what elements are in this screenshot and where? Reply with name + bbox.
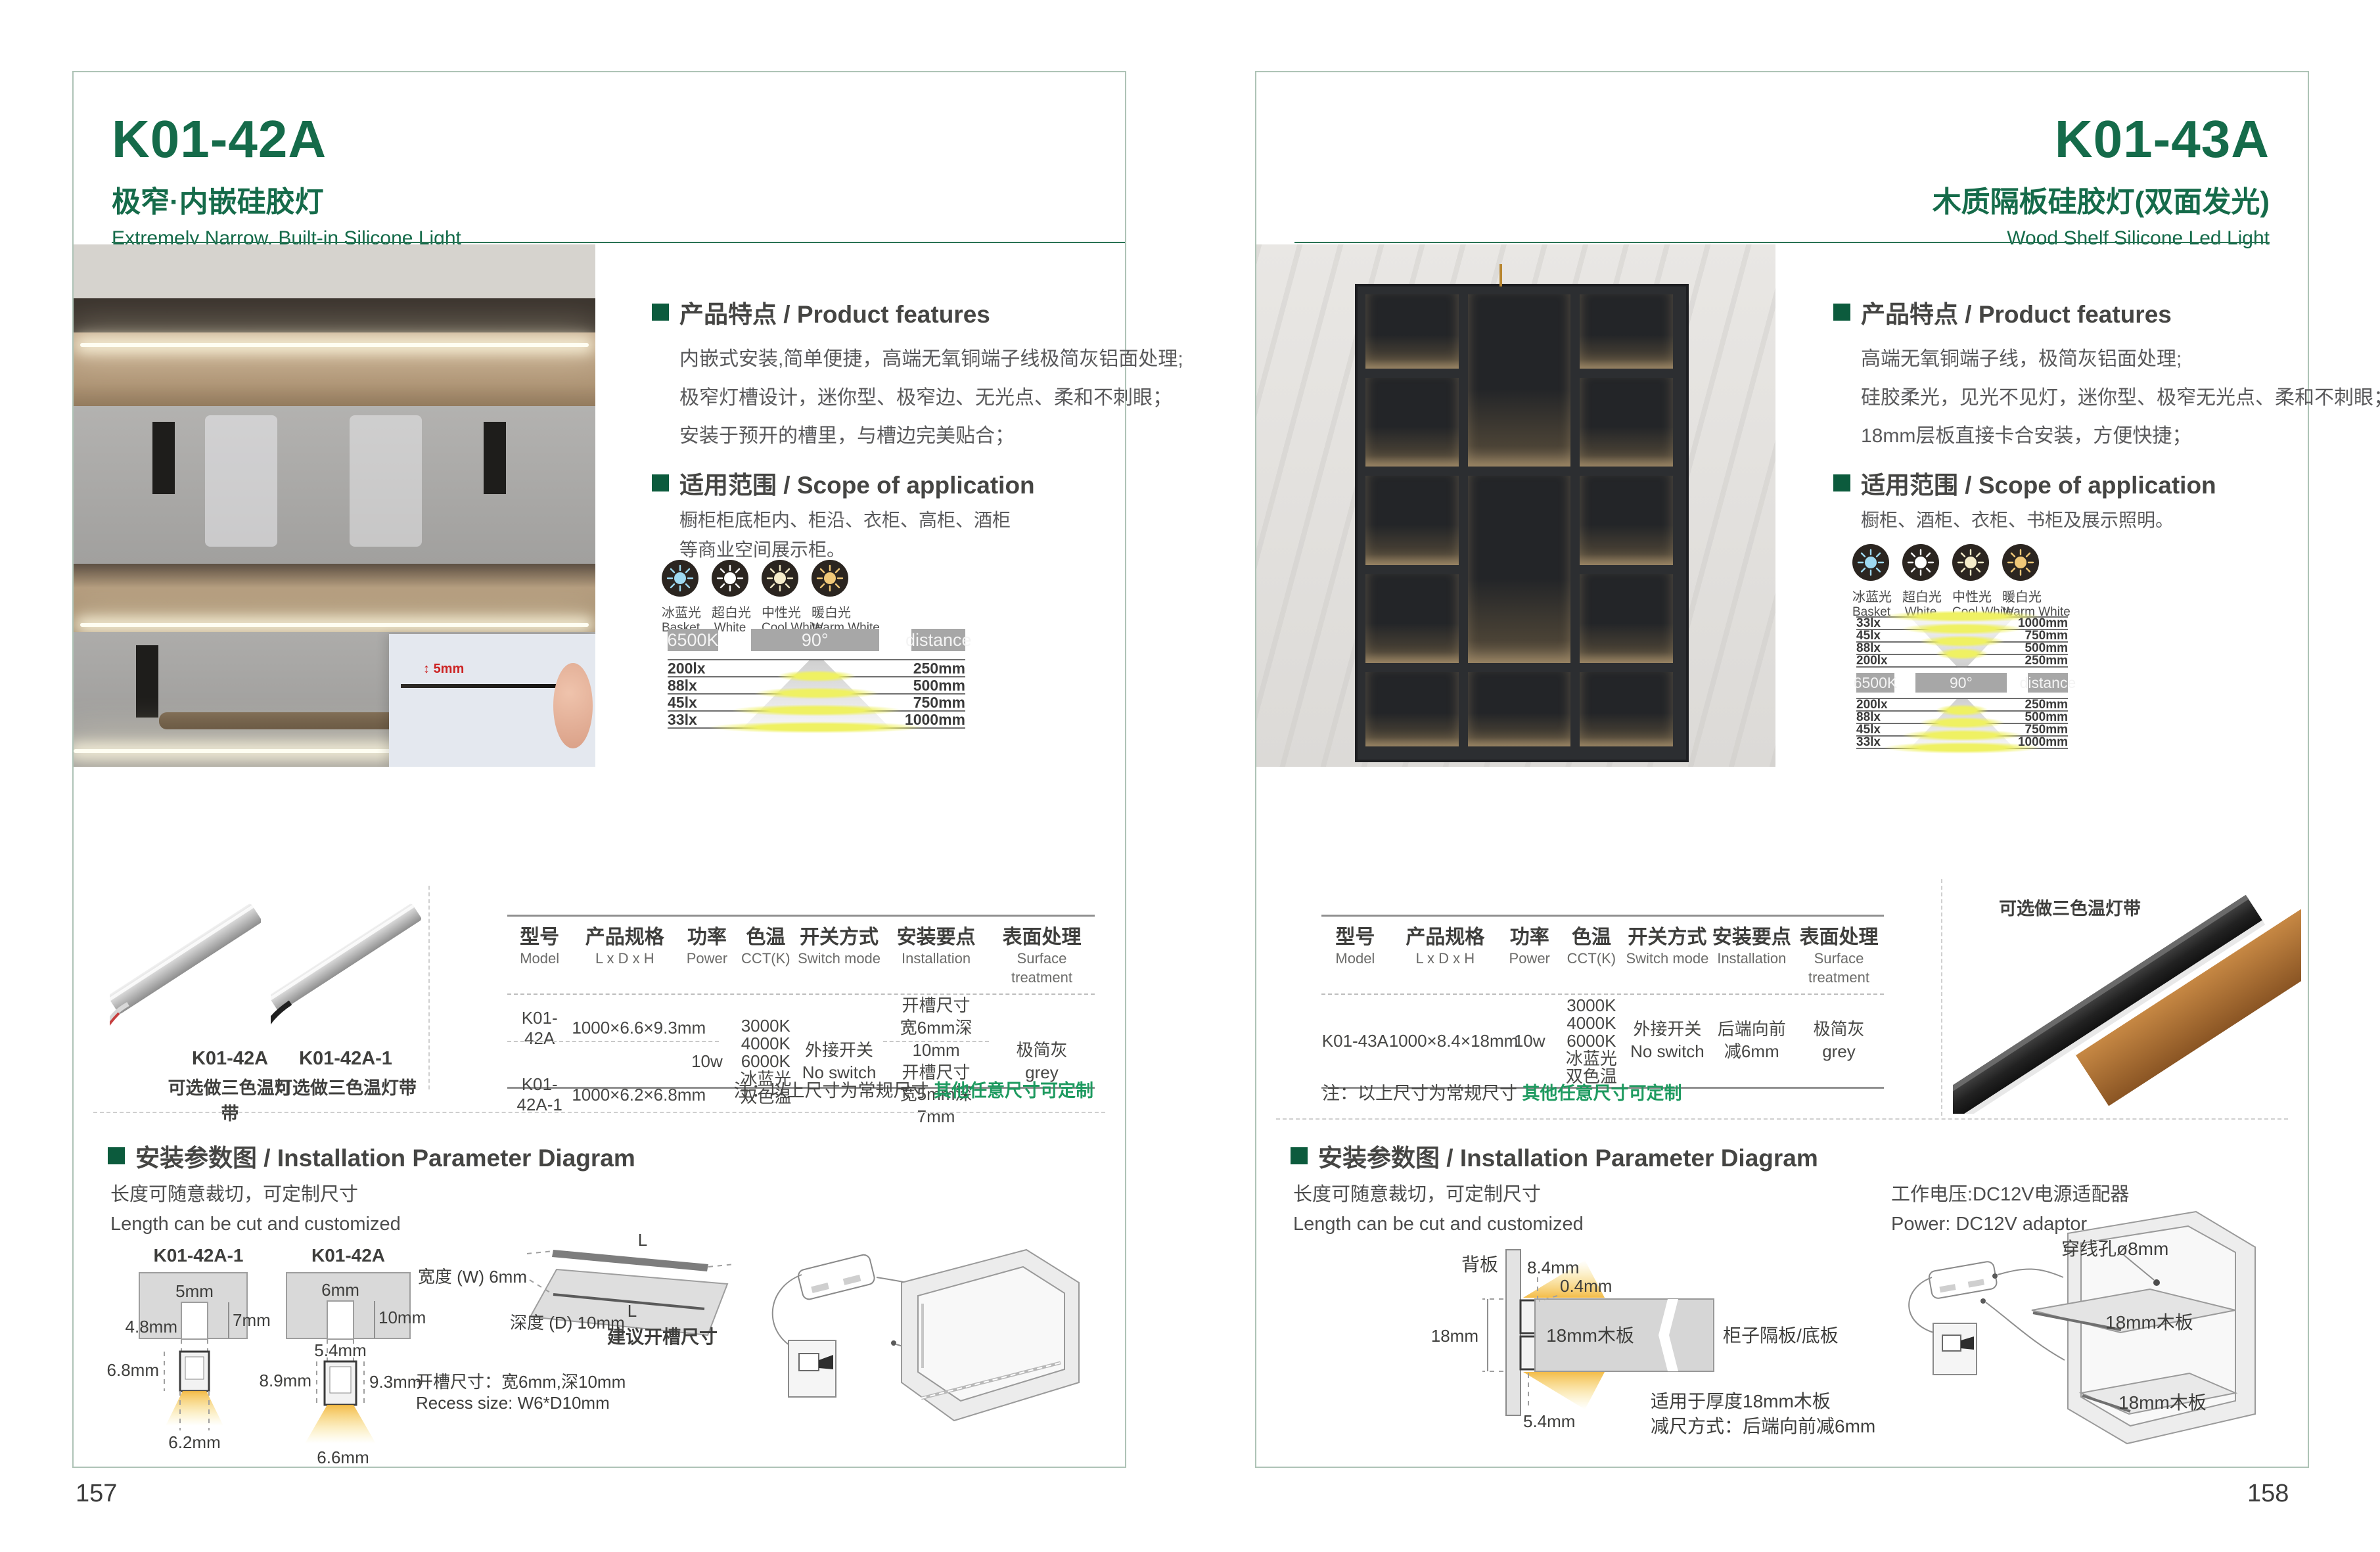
cell-switch-en: No switch [1625,1041,1709,1063]
inset-photo-thickness: ↕ 5mm [389,634,595,767]
note-prefix: 注：以上尺寸为常规尺寸 [1322,1084,1522,1103]
col-spec: 1000×8.4×18mm [1389,995,1501,1087]
header-cn: 功率 [677,926,736,949]
shelf-panel-label: 柜子隔板/底板 [1723,1325,1839,1346]
cabinet-cell [1468,476,1570,663]
page-157: K01-42A 极窄·内嵌硅胶灯 Extremely Narrow. Built… [72,71,1126,1468]
shelf-bracket-3 [136,645,158,718]
glow-ellipse [1936,704,1988,716]
header-divider [1294,242,2270,243]
sun-icon [2002,544,2039,581]
feature-line: 内嵌式安装,简单便捷，高端无氧铜端子线极简灰铝面处理; [679,340,1183,379]
note-prefix: 注：以上尺寸为常规尺寸 [733,1081,934,1101]
col-cct: 3000K 4000K 6000K 冰蓝光 双色温 [737,995,795,1128]
light-option-cn: 超白光 [712,602,748,621]
cell-model: K01-42A-1 [507,1074,572,1115]
recess-size-cn: 开槽尺寸：宽6mm,深10mm [416,1372,626,1392]
light-option-cn: 冰蓝光 [662,602,698,621]
table-note: 注：以上尺寸为常规尺寸 其他任意尺寸可定制 [1322,1079,1682,1105]
sun-icon [762,560,798,597]
catalog-spread: K01-42A 极窄·内嵌硅胶灯 Extremely Narrow. Built… [0,0,2380,1552]
page-number-right: 158 [2247,1480,2289,1508]
section-bullet-icon [108,1147,125,1164]
header-cn: 安装要点 [1710,926,1794,949]
col-header: 型号Model [507,926,572,987]
chart-header: 6500K 90° distance [1856,673,2068,693]
header-cn: 型号 [507,926,572,949]
header-en: L x D x H [572,949,677,969]
distance-value: 1000mm [905,711,965,729]
dim-right: 9.3mm [369,1372,421,1392]
scope-line: 橱柜柜底柜内、柜沿、衣柜、高柜、酒柜 [679,506,1011,536]
scope-text: 橱柜柜底柜内、柜沿、衣柜、高柜、酒柜 等商业空间展示柜。 [679,506,1011,565]
section-bullet-icon [1833,474,1850,491]
header-en: Power [1501,949,1558,969]
inset-strip [401,684,565,688]
install-line: 后端向前 [1710,1018,1794,1041]
dim-depth: 10mm [378,1308,426,1327]
col-header: 色温CCT(K) [737,926,795,987]
shelf-section-diagram: 背板 8.4mm 0.4mm 18mm 18mm木板 柜子隔板/底板 5.4mm… [1431,1250,1875,1436]
feature-line: 高端无氧铜端子线，极简灰铝面处理; [1861,340,2380,379]
header-en: Model [1321,949,1389,969]
distance-badge: distance [911,629,965,651]
cct-line: 6000K [737,1053,795,1070]
wiring-illustration [773,1250,1079,1421]
header-en: Surface treatment [1794,949,1884,987]
product-photo-shelf-lighting: ↕ 5mm [74,244,595,767]
glow-ellipse [754,687,879,699]
cabinet-cells [1365,294,1673,746]
light-option-white: 超白光 White [1902,544,1939,620]
header-en: L x D x H [1389,949,1501,969]
table-header: 型号Model 产品规格L x D x H 功率Power 色温CCT(K) 开… [507,917,1095,995]
header-en: Model [507,949,572,969]
wire-black [271,1003,290,1034]
header-en: CCT(K) [1558,949,1626,969]
led-strip-glow-2 [80,623,589,627]
board-caption: 建议开槽尺寸 [607,1327,718,1347]
lux-value: 200lx [1856,654,1888,668]
header-en: Surface treatment [989,949,1095,987]
glow-ellipse [1919,635,2005,647]
header-en: Power [677,949,736,969]
install-line: 宽6mm深10mm [883,1017,989,1062]
model-code: K01-43A [1933,113,2270,166]
cct-line: 冰蓝光 [1558,1050,1626,1068]
cell-spec: 1000×8.4×18mm [1389,1031,1501,1051]
light-option-cn: 中性光 [1952,586,1989,605]
features-text: 内嵌式安装,简单便捷，高端无氧铜端子线极简灰铝面处理; 极窄灯槽设计，迷你型、极… [679,340,1183,456]
wire-white [110,1004,128,1028]
cell-power: 10w [677,1051,736,1072]
light-option-coolwhite: 中性光 Cool White [762,560,798,635]
fit-note: 适用于厚度18mm木板 [1651,1391,1831,1411]
title-en: Wood Shelf Silicone Led Light [1933,229,2270,248]
cabinet-cell [1468,294,1570,467]
cct-badge: 6500K [668,629,718,651]
dim-0-4: 0.4mm [1560,1276,1612,1296]
col-header: 型号Model [1321,926,1389,987]
dim-top: 5mm [175,1281,214,1301]
product-illustration-k01-42a [110,887,261,1038]
distance-value: 250mm [2025,654,2069,668]
length-label: L [638,1230,647,1250]
light-option-coolwhite: 中性光 Cool White [1952,544,1989,620]
cell-switch-cn: 外接开关 [795,1039,883,1062]
page-title: K01-43A 木质隔板硅胶灯(双面发光) Wood Shelf Silicon… [1933,113,2270,248]
section-divider-dash [1276,1118,2288,1120]
beam-angle-badge: 90° [751,629,879,651]
header-cn: 开关方式 [1625,926,1709,949]
glass-container-1 [205,415,277,547]
dim-top: 6mm [321,1280,359,1300]
col-surface: 极简灰grey [989,995,1095,1128]
cell-model: K01-42A [507,1008,572,1049]
glow-ellipse [731,704,902,716]
table-header: 型号Model 产品规格L x D x H 功率Power 色温CCT(K) 开… [1321,917,1884,995]
glass-container-2 [350,415,422,547]
col-header: 表面处理Surface treatment [1794,926,1884,987]
scope-heading: 适用范围 / Scope of application [679,465,1035,501]
header-cn: 安装要点 [883,926,989,949]
header-cn: 型号 [1321,926,1389,949]
pendant-wire [1499,264,1502,286]
col-header: 功率Power [1501,926,1558,987]
back-panel-label: 背板 [1461,1254,1498,1275]
distance-badge: distance [2028,673,2068,693]
lux-value: 45lx [668,694,697,712]
sun-icon [1852,544,1889,581]
distance-value: 1000mm [2018,735,2068,750]
recess-size-en: Recess size: W6*D10mm [416,1393,610,1413]
suggested-recess-board: L L 宽度 (W) 6mm 深度 (D) 10mm 建议开槽尺寸 开槽尺寸：宽… [416,1230,735,1413]
glow-ellipse [777,670,856,682]
cabinet-cell [1580,574,1673,663]
wiring-illustration: 穿线孔ø8mm 18mm木板 18mm木板 [1909,1212,2255,1444]
feature-line: 18mm层板直接卡合安装，方便快捷； [1861,417,2380,456]
dim-bottom: 6.2mm [168,1432,220,1452]
photo-ceiling [74,244,595,298]
light-option-warmwhite: 暖白光 Warm White [2002,544,2039,620]
features-heading: 产品特点 / Product features [679,294,990,330]
header-cn: 色温 [1558,926,1626,949]
cabinet-cell [1580,294,1673,369]
cct-line: 6000K [1558,1032,1626,1050]
chart-header: 6500K 90° distance [668,629,965,651]
page-158: K01-43A 木质隔板硅胶灯(双面发光) Wood Shelf Silicon… [1255,71,2309,1468]
title-cn: 极窄·内嵌硅胶灯 [112,188,461,217]
header-en: Switch mode [1625,949,1709,969]
thickness-dim-label: ↕ 5mm [423,662,464,677]
install-heading: 安装参数图 / Installation Parameter Diagram [135,1138,635,1174]
feature-line: 极窄灯槽设计，迷你型、极窄边、无光点、柔和不刺眼； [679,379,1183,418]
light-option-warmwhite: 暖白光 Warm White [812,560,848,635]
features-heading-row: 产品特点 / Product features [1833,294,2172,330]
cabinet-cell [1468,672,1570,746]
row-divider-dash [507,1041,719,1042]
diagram-model-label: K01-42A [311,1245,385,1266]
col-power: 10w [677,995,736,1128]
install-entry: 开槽尺寸宽6mm深10mm [883,995,989,1061]
title-cn: 木质隔板硅胶灯(双面发光) [1933,188,2270,217]
col-surface: 极简灰grey [1794,995,1884,1087]
lux-value: 200lx [668,660,706,677]
shelf-board-label-2: 18mm木板 [2118,1392,2207,1413]
light-option-cn: 暖白光 [812,602,848,621]
light-color-options: 冰蓝光 Basket 超白光 White 中性光 Cool White [662,560,848,635]
dim-5-4: 5.4mm [1523,1411,1575,1431]
shelf-bracket-1 [152,422,175,494]
power-adapter-drawing [1928,1261,1998,1300]
col-header: 开关方式Switch mode [1625,926,1709,987]
light-option-white: 超白光 White [712,560,748,635]
sun-icon [662,560,698,597]
cabinet-cell [1365,378,1459,467]
cell-model: K01-43A [1321,1031,1389,1051]
product-model: K01-42A-1 [273,1045,418,1074]
cabinet-cell [1580,476,1673,564]
light-option-iceblue: 冰蓝光 Basket [1852,544,1889,620]
cabinet-cell [1580,672,1673,746]
scope-text: 橱柜、酒柜、衣柜、书柜及展示照明。 [1861,506,2174,536]
col-install: 后端向前减6mm [1710,995,1794,1087]
header-cn: 产品规格 [572,926,677,949]
col-spec: 1000×6.6×9.3mm1000×6.2×6.8mm [572,995,677,1128]
scope-line: 橱柜、酒柜、衣柜、书柜及展示照明。 [1861,506,2174,536]
section-bullet-icon [652,304,669,321]
spec-table: 型号Model 产品规格L x D x H 功率Power 色温CCT(K) 开… [1321,915,1884,1089]
install-diagram-right: 背板 8.4mm 0.4mm 18mm 18mm木板 柜子隔板/底板 5.4mm… [1276,1204,2288,1467]
light-distance-chart-double: 33lx1000mm 45lx750mm 88lx500mm 200lx250m… [1856,616,2068,749]
col-switch: 外接开关No switch [795,995,883,1128]
led-strip-glow-1 [80,343,589,347]
sun-icon [1902,544,1939,581]
row-divider-dash [883,1041,989,1042]
scope-heading: 适用范围 / Scope of application [1861,465,2216,501]
shelf-board-label-1: 18mm木板 [2105,1312,2193,1333]
board-label: 18mm木板 [1546,1325,1634,1346]
scope-heading-row: 适用范围 / Scope of application [652,465,1035,501]
distance-value: 500mm [913,677,965,695]
length-label: L [628,1301,637,1321]
col-model: K01-43A [1321,995,1389,1087]
light-option-cn: 暖白光 [2002,586,2039,605]
cct-line: 3000K [1558,997,1626,1015]
install-diagram-left: K01-42A-1 5mm 7mm 4.8mm 6.8mm 6.2mm K01-… [93,1204,1105,1467]
header-cn: 表面处理 [989,926,1095,949]
light-option-cn: 冰蓝光 [1852,586,1889,605]
dim-inner: 5.4mm [314,1340,366,1360]
install-heading: 安装参数图 / Installation Parameter Diagram [1318,1138,1818,1174]
table-note: 注：以上尺寸为常规尺寸 其他任意尺寸可定制 [733,1076,1093,1102]
glow-ellipse [1919,717,2005,729]
sun-icon [812,560,848,597]
page-title: K01-42A 极窄·内嵌硅胶灯 Extremely Narrow. Built… [112,113,461,248]
product-label-2: K01-42A-1 可选做三色温灯带 [273,1045,418,1099]
cct-line: 4000K [737,1035,795,1053]
product-illustration-k01-43a: 可选做三色温灯带 [1953,877,2301,1114]
cell-surface-cn: 极简灰 [1794,1018,1884,1041]
col-header: 安装要点Installation [1710,926,1794,987]
lux-value: 33lx [668,711,697,729]
distance-value: 750mm [913,694,965,712]
profile-drawing [110,887,261,1038]
page-number-left: 157 [76,1480,117,1508]
cabinet-cell [1365,294,1459,369]
dim-height: 6.8mm [107,1360,159,1380]
section-bullet-icon [652,474,669,491]
product-note: 可选做三色温灯带 [273,1074,418,1099]
header-cn: 产品规格 [1389,926,1501,949]
col-header: 色温CCT(K) [1558,926,1626,987]
cell-spec: 1000×6.6×9.3mm [572,1018,677,1038]
features-text: 高端无氧铜端子线，极简灰铝面处理; 硅胶柔光，见光不见灯，迷你型、极窄无光点、柔… [1861,340,2380,456]
beam-angle-badge: 90° [1915,673,2006,693]
cell-spec: 1000×6.2×6.8mm [572,1085,677,1105]
cct-badge: 6500K [1856,673,1894,693]
thickness-arrow-icon: ↕ [423,662,430,676]
recess-diagram-k01-42a-1: K01-42A-1 5mm 7mm 4.8mm 6.8mm 6.2mm [107,1245,271,1452]
cct-line: 3000K [737,1017,795,1035]
col-header: 开关方式Switch mode [795,926,883,987]
install-line: 开槽尺寸 [883,995,989,1017]
col-cct: 3000K 4000K 6000K 冰蓝光 双色温 [1558,995,1626,1087]
header-cn: 功率 [1501,926,1558,949]
photo-beam [74,298,595,332]
features-heading-row: 产品特点 / Product features [652,294,990,330]
col-switch: 外接开关No switch [1625,995,1709,1087]
sun-icon [712,560,748,597]
feature-line: 安装于预开的槽里，与槽边完美贴合； [679,417,1183,456]
dim-18: 18mm [1431,1326,1478,1346]
width-label: 宽度 (W) 6mm [418,1267,527,1287]
col-header: 表面处理Surface treatment [989,926,1095,987]
cell-surface-cn: 极简灰 [989,1039,1095,1062]
profile-drawing [271,887,422,1038]
chart-rows: 200lx250mm 88lx500mm 45lx750mm 33lx1000m… [668,659,965,729]
lux-value: 33lx [1856,735,1881,750]
feature-line: 硅胶柔光，见光不见灯，迷你型、极窄无光点、柔和不刺眼； [1861,379,2380,418]
light-color-options: 冰蓝光 Basket 超白光 White 中性光 Cool White [1852,544,2039,620]
header-en: CCT(K) [737,949,795,969]
col-header: 产品规格L x D x H [1389,926,1501,987]
col-header: 产品规格L x D x H [572,926,677,987]
thickness-value: 5mm [434,662,465,676]
shelf-bracket-2 [484,422,506,494]
vertical-divider [1941,879,1942,1116]
chart-rows-bottom: 200lx250mm 88lx500mm 45lx750mm 33lx1000m… [1856,698,2068,749]
cabinet-cell [1365,672,1459,746]
dim-8-4: 8.4mm [1527,1258,1579,1277]
product-photo-display-cabinet [1256,244,1775,767]
product-illustration-k01-42a-1 [271,887,422,1038]
hand-photo [553,663,593,748]
dim-left: 8.9mm [260,1371,311,1390]
header-en: Installation [883,949,989,969]
header-cn: 表面处理 [1794,926,1884,949]
header-en: Installation [1710,949,1794,969]
header-cn: 色温 [737,926,795,949]
col-power: 10w [1501,995,1558,1087]
glow-ellipse [1902,729,2023,741]
cell-switch-cn: 外接开关 [1625,1018,1709,1041]
cabinet-cell [1365,574,1459,663]
section-divider-dash [93,1112,1105,1113]
section-bullet-icon [1833,304,1850,321]
scope-heading-row: 适用范围 / Scope of application [1833,465,2216,501]
cabinet-cell [1365,476,1459,564]
vertical-divider [428,886,430,1089]
diagram-model-label: K01-42A-1 [154,1245,244,1266]
dim-bottom: 6.6mm [317,1448,369,1467]
col-install: 开槽尺寸宽6mm深10mm 开槽尺寸宽5mm深7mm [883,995,989,1128]
section-bullet-icon [1291,1147,1308,1164]
note-highlight: 其他任意尺寸可定制 [934,1081,1093,1101]
lux-value: 88lx [668,677,697,695]
aluminum-profile [271,903,422,1013]
light-option-iceblue: 冰蓝光 Basket [662,560,698,635]
cabinet-cell [1580,378,1673,467]
note-highlight: 其他任意尺寸可定制 [1522,1084,1682,1103]
reduce-note: 减尺方式：后端向前减6mm [1651,1416,1875,1436]
cabinet-drawing [902,1250,1079,1421]
product-note: 可选做三色温灯带 [1999,894,2141,920]
glow-ellipse [1936,648,1988,660]
hole-label: 穿线孔ø8mm [2061,1239,2168,1259]
chart-rows-top: 33lx1000mm 45lx750mm 88lx500mm 200lx250m… [1856,616,2068,668]
table-body: K01-42AK01-42A-1 1000×6.6×9.3mm1000×6.2×… [507,995,1095,1087]
spec-table: 型号Model 产品规格L x D x H 功率Power 色温CCT(K) 开… [507,915,1095,1089]
cell-power: 10w [1501,1031,1558,1051]
power-adapter-drawing [797,1254,876,1301]
distance-value: 250mm [913,660,965,677]
light-distance-chart: 6500K 90° distance 200lx250mm 88lx500mm … [668,629,965,729]
light-option-cn: 中性光 [762,602,798,621]
recess-diagram-k01-42a: K01-42A 6mm 10mm 5.4mm 8.9mm 9.3mm 6.6mm [260,1245,426,1467]
install-heading-row: 安装参数图 / Installation Parameter Diagram [1291,1138,1818,1174]
col-header: 功率Power [677,926,736,987]
cct-line: 4000K [1558,1015,1626,1032]
glow-ellipse [1902,623,2023,635]
dim-depth: 7mm [233,1310,271,1330]
glow-ellipse [708,721,925,733]
cell-surface-en: grey [1794,1041,1884,1063]
light-option-cn: 超白光 [1902,586,1939,605]
model-code: K01-42A [112,113,461,166]
features-heading: 产品特点 / Product features [1861,294,2172,330]
col-header: 安装要点Installation [883,926,989,987]
header-divider [112,242,1125,243]
install-heading-row: 安装参数图 / Installation Parameter Diagram [108,1138,635,1174]
dim-inner: 4.8mm [126,1317,177,1336]
header-cn: 开关方式 [795,926,883,949]
sun-icon [1952,544,1989,581]
header-en: Switch mode [795,949,883,969]
install-line: 减6mm [1710,1041,1794,1063]
photo-shelf-2 [74,564,595,632]
aluminum-profile [110,903,261,1015]
col-model: K01-42AK01-42A-1 [507,995,572,1128]
table-body: K01-43A 1000×8.4×18mm 10w 3000K 4000K 60… [1321,995,1884,1087]
